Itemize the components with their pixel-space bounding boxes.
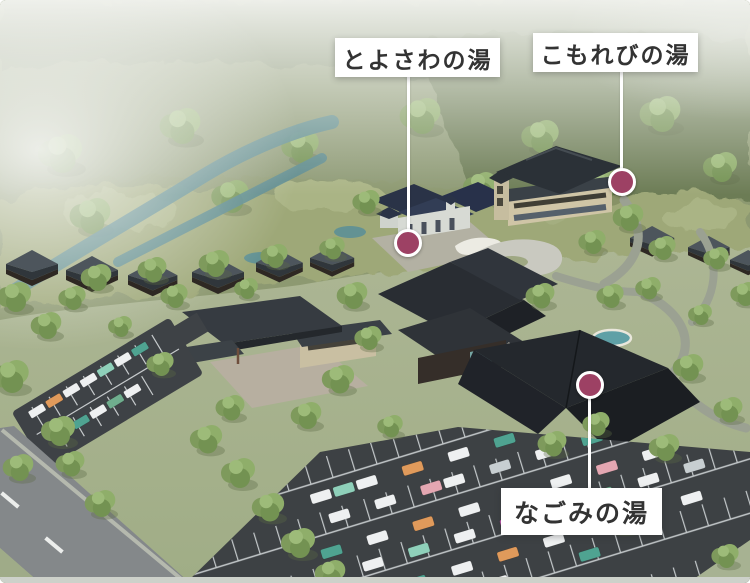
leader-line-toyosawa: [407, 77, 410, 232]
location-marker-toyosawa-icon[interactable]: [394, 229, 422, 257]
location-marker-komorebi-icon[interactable]: [608, 168, 636, 196]
bottom-edge-strip: [0, 577, 750, 583]
callout-komorebi-no-yu[interactable]: こもれびの湯: [533, 33, 698, 72]
site-map: とよさわの湯 こもれびの湯 なごみの湯: [0, 0, 750, 583]
callout-toyosawa-no-yu[interactable]: とよさわの湯: [335, 38, 500, 77]
callout-nagomi-no-yu[interactable]: なごみの湯: [501, 488, 662, 535]
location-marker-nagomi-icon[interactable]: [576, 371, 604, 399]
leader-line-nagomi: [588, 395, 591, 489]
leader-line-komorebi: [620, 72, 623, 171]
